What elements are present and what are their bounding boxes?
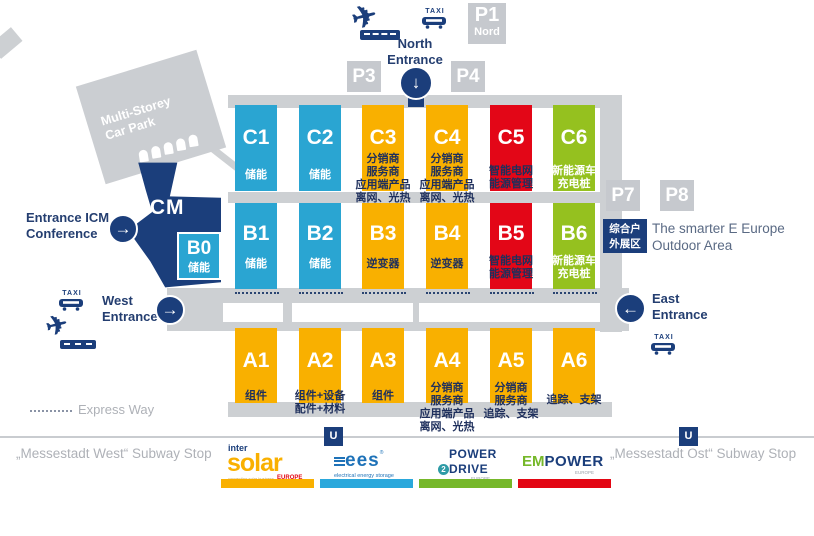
hall-B0[interactable]: B0储能 [177,232,221,280]
outdoor-area-label: The smarter E Europe Outdoor Area [652,220,785,254]
hall-category-line: 智能电网 [489,255,533,268]
ees-bar [320,479,413,488]
hall-category: 组件+设备配件+材料 [299,390,341,416]
subway-stop-ost: „Messestadt Ost“ Subway Stop [610,446,796,461]
hall-id: B3 [362,221,404,247]
west-entrance-arrow[interactable]: → [155,295,185,325]
icm-ent-line2: Conference [26,226,109,242]
edge-road [0,27,23,59]
outdoor-box-line1: 综合户 [603,222,647,237]
hall-id: B6 [553,221,595,247]
hall-category-line: 充电桩 [558,268,591,281]
hall-id: A4 [426,348,468,374]
hall-id: A5 [490,348,532,374]
expressway-segment [426,292,470,294]
hall-A6[interactable]: A6追踪、支架 [553,328,595,403]
hall-category-line: 分销商 [431,153,464,166]
hall-category-line: 服务商 [495,395,528,408]
hall-category-line: 储能 [188,262,210,275]
intersolar-logo[interactable]: inter solar connecting solar business EU… [223,443,316,481]
hall-category: 智能电网能源管理 [490,255,532,281]
hall-category: 分销商服务商应用端产品离网、光热 [362,153,404,205]
west-entrance-label: West Entrance [102,293,158,325]
west-line2: Entrance [102,309,158,325]
hall-id: B0 [179,236,219,262]
hall-category-line: 配件+材料 [295,403,345,416]
hall-id: C1 [235,125,277,151]
outdoor-area-box[interactable]: 综合户 外展区 [603,219,647,253]
empower-em: EM [522,453,545,470]
hall-category: 储能 [235,169,277,182]
hall-C1[interactable]: C1储能 [235,105,277,191]
hall-category-line: 应用端产品 [356,179,411,192]
hall-category: 储能 [299,169,341,182]
hall-C6[interactable]: C6新能源车充电桩 [553,105,595,191]
hall-category-line: 服务商 [431,166,464,179]
hall-category: 组件 [362,390,404,403]
hall-category-line: 分销商 [367,153,400,166]
taxi-stand-north: TAXI [421,8,449,29]
hall-category-line: 储能 [245,169,267,182]
venue-map: Multi-Storey Car Park ICM C1储能C2储能C3分销商服… [0,0,814,536]
hall-B5[interactable]: B5智能电网能源管理 [490,203,532,289]
hall-category: 分销商服务商追踪、支架 [490,382,532,421]
parking-p1[interactable]: P1 Nord [468,3,506,44]
subway-stop-west: „Messestadt West“ Subway Stop [16,446,212,461]
hall-category-line: 应用端产品 [420,179,475,192]
hall-C5[interactable]: C5智能电网能源管理 [490,105,532,191]
express-way-label: Express Way [78,402,154,417]
hall-category-line: 追踪、支架 [547,394,602,407]
hall-category: 智能电网能源管理 [490,165,532,191]
hall-category-line: 储能 [309,169,331,182]
parking-p4[interactable]: P4 [451,61,485,92]
taxi-stand-east: TAXI [650,334,678,355]
east-line1: East [652,291,708,307]
intersolar-solar: solar [227,453,316,474]
expressway-segment [235,292,279,294]
hall-A4[interactable]: A4分销商服务商应用端产品离网、光热 [426,328,468,403]
expressway-segment [299,292,343,294]
ees-logo[interactable]: ees ® electrical energy storage [334,450,404,479]
hall-category: 逆变器 [362,258,404,271]
empower-bar [518,479,611,488]
p2d-power: POWER [449,447,498,461]
hall-A5[interactable]: A5分销商服务商追踪、支架 [490,328,532,403]
hall-id: C5 [490,125,532,151]
outdoor-box-line2: 外展区 [603,237,647,252]
hall-category-line: 分销商 [431,382,464,395]
airport-shuttle-icon [60,340,96,349]
hall-category-line: 新能源车 [552,165,596,178]
parking-p7[interactable]: P7 [606,180,640,211]
ees-registered-mark: ® [380,450,384,456]
east-line2: Entrance [652,307,708,323]
icm-entrance-arrow[interactable]: → [108,214,138,244]
intersolar-bar [221,479,314,488]
west-line1: West [102,293,158,309]
empower-logo[interactable]: EM POWER EUROPE [522,453,602,475]
p1-sub-label: Nord [468,26,506,38]
hall-category: 追踪、支架 [553,394,595,407]
outdoor-label-line2: Outdoor Area [652,237,785,254]
hall-B4[interactable]: B4逆变器 [426,203,468,289]
hall-id: A6 [553,348,595,374]
hall-id: C2 [299,125,341,151]
icm-label: ICM [143,196,185,220]
hall-category-line: 储能 [309,258,331,271]
parking-p8[interactable]: P8 [660,180,694,211]
hall-category-line: 能源管理 [489,268,533,281]
ees-lines-icon [334,455,345,467]
hall-category-line: 组件+设备 [295,390,345,403]
hall-id: C3 [362,125,404,151]
east-entrance-arrow[interactable]: ← [615,293,646,324]
hall-category: 储能 [299,258,341,271]
hall-B6[interactable]: B6新能源车充电桩 [553,203,595,289]
hall-C2[interactable]: C2储能 [299,105,341,191]
ees-name: ees [345,450,380,472]
hall-category-line: 追踪、支架 [484,408,539,421]
north-entrance-arrow[interactable]: ↓ [399,66,433,100]
empower-power: POWER [545,453,604,470]
taxi-icon [421,16,447,29]
subway-u-icon-ost[interactable]: U [679,427,698,446]
subway-u-icon-west[interactable]: U [324,427,343,446]
hall-id: B4 [426,221,468,247]
hall-category-line: 应用端产品 [420,408,475,421]
hall-category: 储能 [235,258,277,271]
hall-B2[interactable]: B2储能 [299,203,341,289]
icm-ent-line1: Entrance ICM [26,210,109,226]
expressway-segment [490,292,534,294]
taxi-label: TAXI [650,334,678,342]
north-entrance-label: North Entrance [381,36,449,68]
p2d-two-icon: 2 [438,464,449,475]
hall-category-line: 智能电网 [489,165,533,178]
hall-category-line: 逆变器 [431,258,464,271]
expressway-segment [553,292,597,294]
taxi-label: TAXI [421,8,449,16]
hall-category-line: 逆变器 [367,258,400,271]
car-icons [137,126,223,163]
hall-id: C6 [553,125,595,151]
hall-category-line: 组件 [372,390,394,403]
walkway [223,303,283,322]
hall-id: B5 [490,221,532,247]
walkway [292,303,413,322]
hall-A2[interactable]: A2组件+设备配件+材料 [299,328,341,403]
hall-category: 分销商服务商应用端产品离网、光热 [426,153,468,205]
hall-C3[interactable]: C3分销商服务商应用端产品离网、光热 [362,105,404,191]
hall-B3[interactable]: B3逆变器 [362,203,404,289]
p1-label: P1 [468,4,506,26]
power2drive-bar [419,479,512,488]
hall-category: 储能 [179,262,219,275]
hall-category-line: 储能 [245,258,267,271]
hall-category-line: 离网、光热 [420,421,475,434]
hall-category-line: 能源管理 [489,178,533,191]
express-way-line [30,410,72,412]
hall-id: A1 [235,348,277,374]
hall-category: 逆变器 [426,258,468,271]
hall-id: A3 [362,348,404,374]
hall-A3[interactable]: A3组件 [362,328,404,403]
hall-id: B2 [299,221,341,247]
hall-id: A2 [299,348,341,374]
hall-category: 新能源车充电桩 [553,165,595,191]
expressway-segment [362,292,406,294]
hall-category: 分销商服务商应用端产品离网、光热 [426,382,468,434]
icm-entrance-label: Entrance ICM Conference [26,210,109,242]
hall-category-line: 分销商 [495,382,528,395]
hall-C4[interactable]: C4分销商服务商应用端产品离网、光热 [426,105,468,191]
walkway [419,303,600,322]
power2drive-logo[interactable]: POWER 2 DRIVE EUROPE [438,447,498,481]
empower-europe: EUROPE [522,470,594,475]
hall-category-line: 新能源车 [552,255,596,268]
hall-id: B1 [235,221,277,247]
airplane-icon: ✈ [43,308,72,343]
hall-category-line: 组件 [245,390,267,403]
parking-p3[interactable]: P3 [347,61,381,92]
hall-category: 组件 [235,390,277,403]
taxi-icon [650,342,676,355]
outdoor-label-line1: The smarter E Europe [652,220,785,237]
taxi-label: TAXI [58,290,86,298]
hall-category-line: 服务商 [367,166,400,179]
hall-category: 新能源车充电桩 [553,255,595,281]
hall-id: C4 [426,125,468,151]
p2d-drive: DRIVE [449,462,488,476]
hall-B1[interactable]: B1储能 [235,203,277,289]
hall-category-line: 服务商 [431,395,464,408]
north-line1: North [381,36,449,52]
hall-A1[interactable]: A1组件 [235,328,277,403]
hall-category-line: 充电桩 [558,178,591,191]
east-entrance-label: East Entrance [652,291,708,323]
